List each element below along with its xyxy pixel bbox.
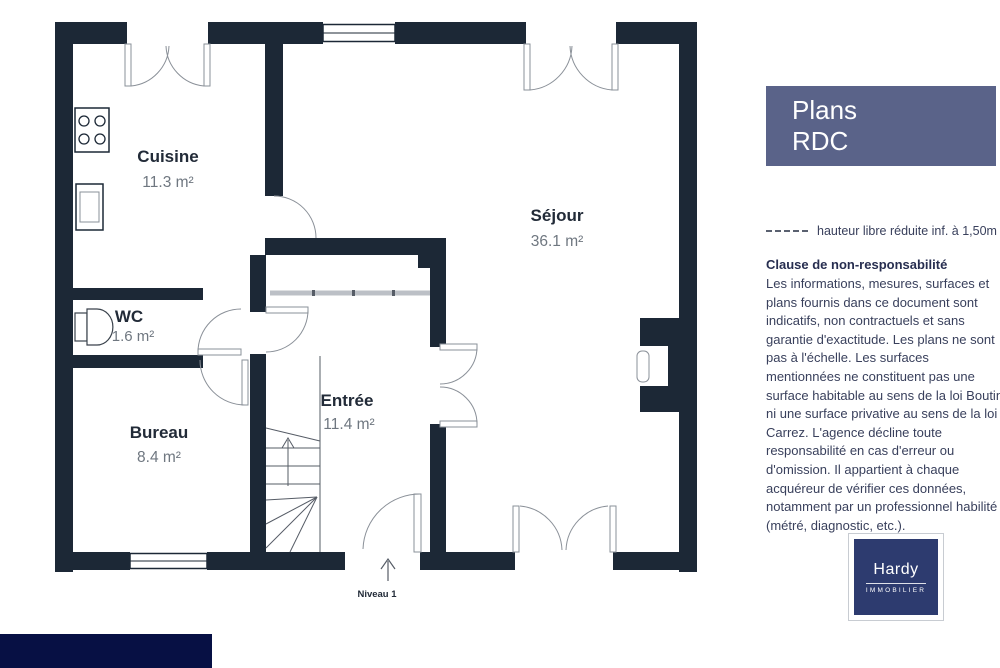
level-arrow-icon [381,559,395,581]
room-name-bureau: Bureau [130,423,189,442]
staircase [266,356,320,552]
room-name-sejour: Séjour [531,206,584,225]
floor-plan: Cuisine 11.3 m² Séjour 36.1 m² WC 1.6 m²… [0,0,760,620]
room-name-entree: Entrée [321,391,374,410]
sink-icon [76,184,103,230]
room-area-sejour: 36.1 m² [531,233,584,250]
room-area-cuisine: 11.3 m² [142,174,193,191]
room-name-cuisine: Cuisine [137,147,198,166]
stair-direction-arrow-icon [282,438,294,486]
plans-title-line2: RDC [792,126,996,157]
room-name-wc: WC [115,307,143,326]
plan-sheet: Cuisine 11.3 m² Séjour 36.1 m² WC 1.6 m²… [0,0,1000,668]
agency-logo: Hardy IMMOBILIER [848,533,944,621]
toilet-icon [75,309,113,345]
disclaimer-heading: Clause de non-responsabilité [766,257,947,272]
room-area-entree: 11.4 m² [323,416,374,433]
beam-line [270,290,430,296]
plans-title-box: Plans RDC [766,86,996,166]
level-label: Niveau 1 [357,589,397,600]
door-arcs [131,46,612,550]
agency-subtitle: IMMOBILIER [866,583,926,594]
footer-accent-bar [0,634,212,668]
reduced-height-legend: hauteur libre réduite inf. à 1,50m [766,224,997,238]
stove-icon [75,108,109,152]
agency-name: Hardy [873,561,918,579]
disclaimer-body: Les informations, mesures, surfaces et p… [766,275,1000,535]
room-area-bureau: 8.4 m² [137,449,181,466]
plans-title-line1: Plans [792,95,996,126]
dashed-line-icon [766,230,808,232]
legend-label: hauteur libre réduite inf. à 1,50m [817,224,997,238]
walls [55,22,697,572]
fireplace-icon [637,346,668,386]
room-area-wc: 1.6 m² [112,328,155,345]
